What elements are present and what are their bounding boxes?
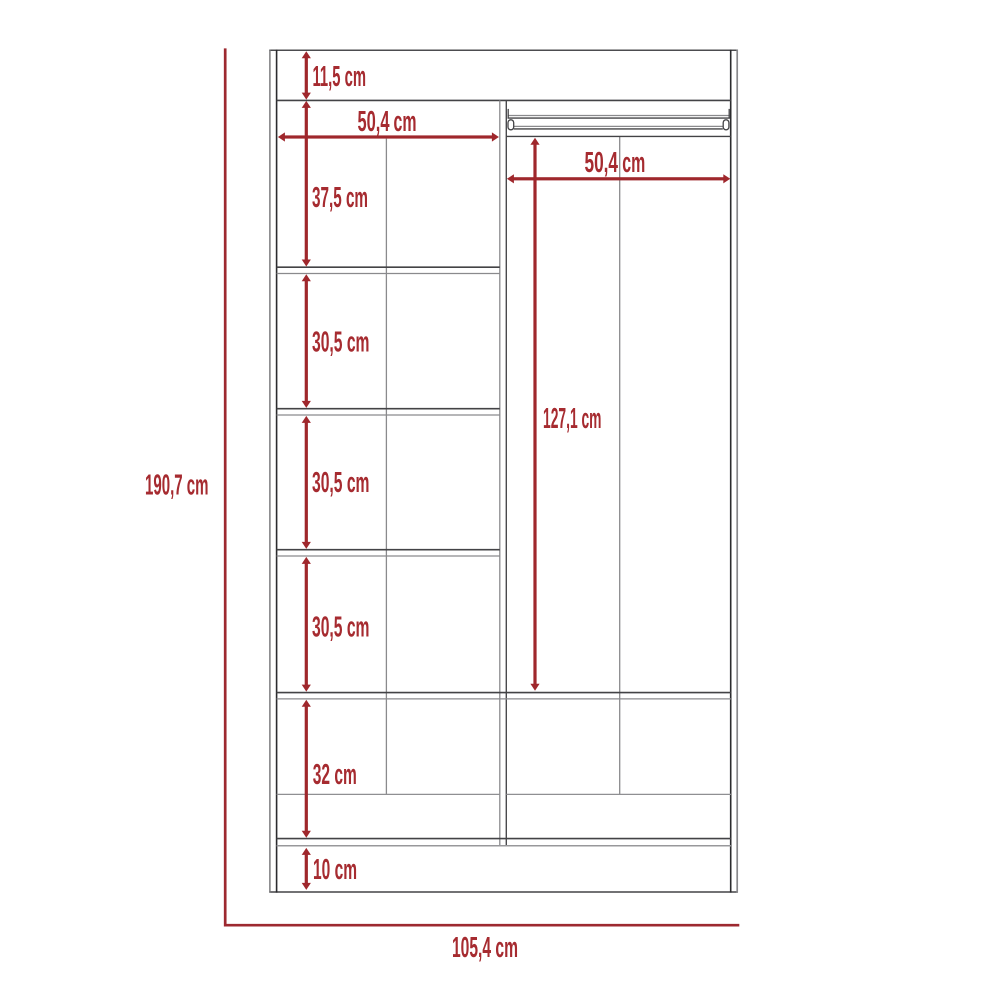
svg-text:50,4cm: 50,4cm	[358, 106, 417, 138]
svg-text:190,7 cm: 190,7 cm	[145, 470, 209, 502]
svg-text:30,5 cm: 30,5 cm	[312, 612, 370, 644]
svg-text:105,4 cm: 105,4 cm	[452, 932, 518, 964]
svg-text:11,5 cm: 11,5 cm	[313, 61, 367, 93]
svg-text:30,5 cm: 30,5 cm	[312, 467, 370, 499]
svg-text:10 cm: 10 cm	[313, 854, 357, 886]
svg-text:50,4cm: 50,4cm	[585, 147, 646, 179]
svg-text:30,5 cm: 30,5 cm	[312, 327, 370, 359]
svg-text:127,1 cm: 127,1 cm	[543, 403, 602, 435]
svg-text:37,5 cm: 37,5 cm	[312, 182, 368, 214]
svg-text:32 cm: 32 cm	[313, 759, 357, 791]
